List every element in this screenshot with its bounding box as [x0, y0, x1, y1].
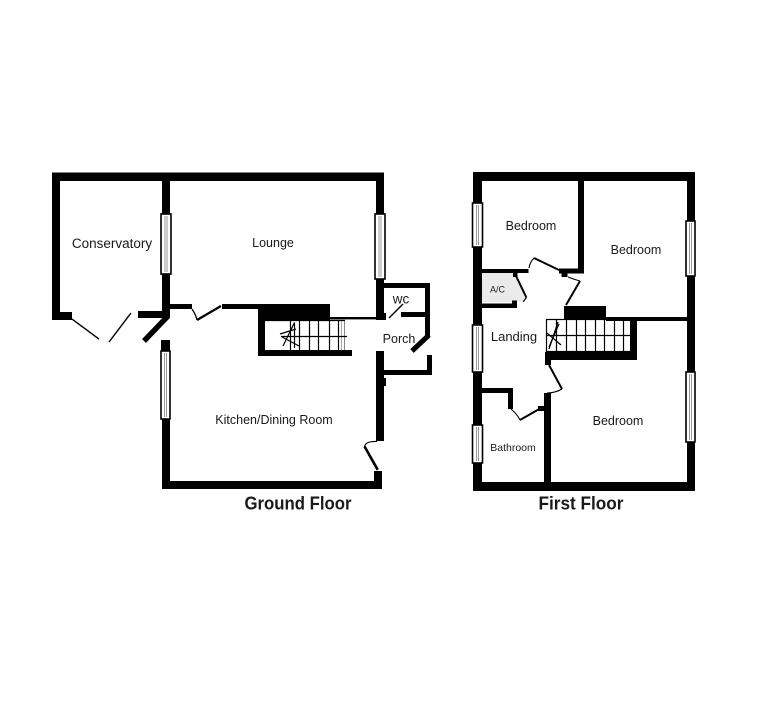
svg-text:Conservatory: Conservatory — [72, 236, 153, 251]
svg-text:Lounge: Lounge — [252, 236, 294, 250]
svg-text:Kitchen/Dining Room: Kitchen/Dining Room — [215, 413, 332, 427]
svg-text:Landing: Landing — [491, 329, 537, 344]
svg-text:A/C: A/C — [490, 285, 506, 295]
svg-text:Bedroom: Bedroom — [611, 243, 662, 257]
svg-text:wc: wc — [392, 292, 410, 307]
svg-text:Bedroom: Bedroom — [506, 219, 557, 233]
svg-text:Porch: Porch — [383, 332, 416, 346]
svg-text:Ground Floor: Ground Floor — [245, 494, 352, 514]
svg-text:Bathroom: Bathroom — [490, 442, 536, 454]
svg-text:Bedroom: Bedroom — [593, 414, 644, 428]
svg-text:First Floor: First Floor — [539, 494, 624, 514]
